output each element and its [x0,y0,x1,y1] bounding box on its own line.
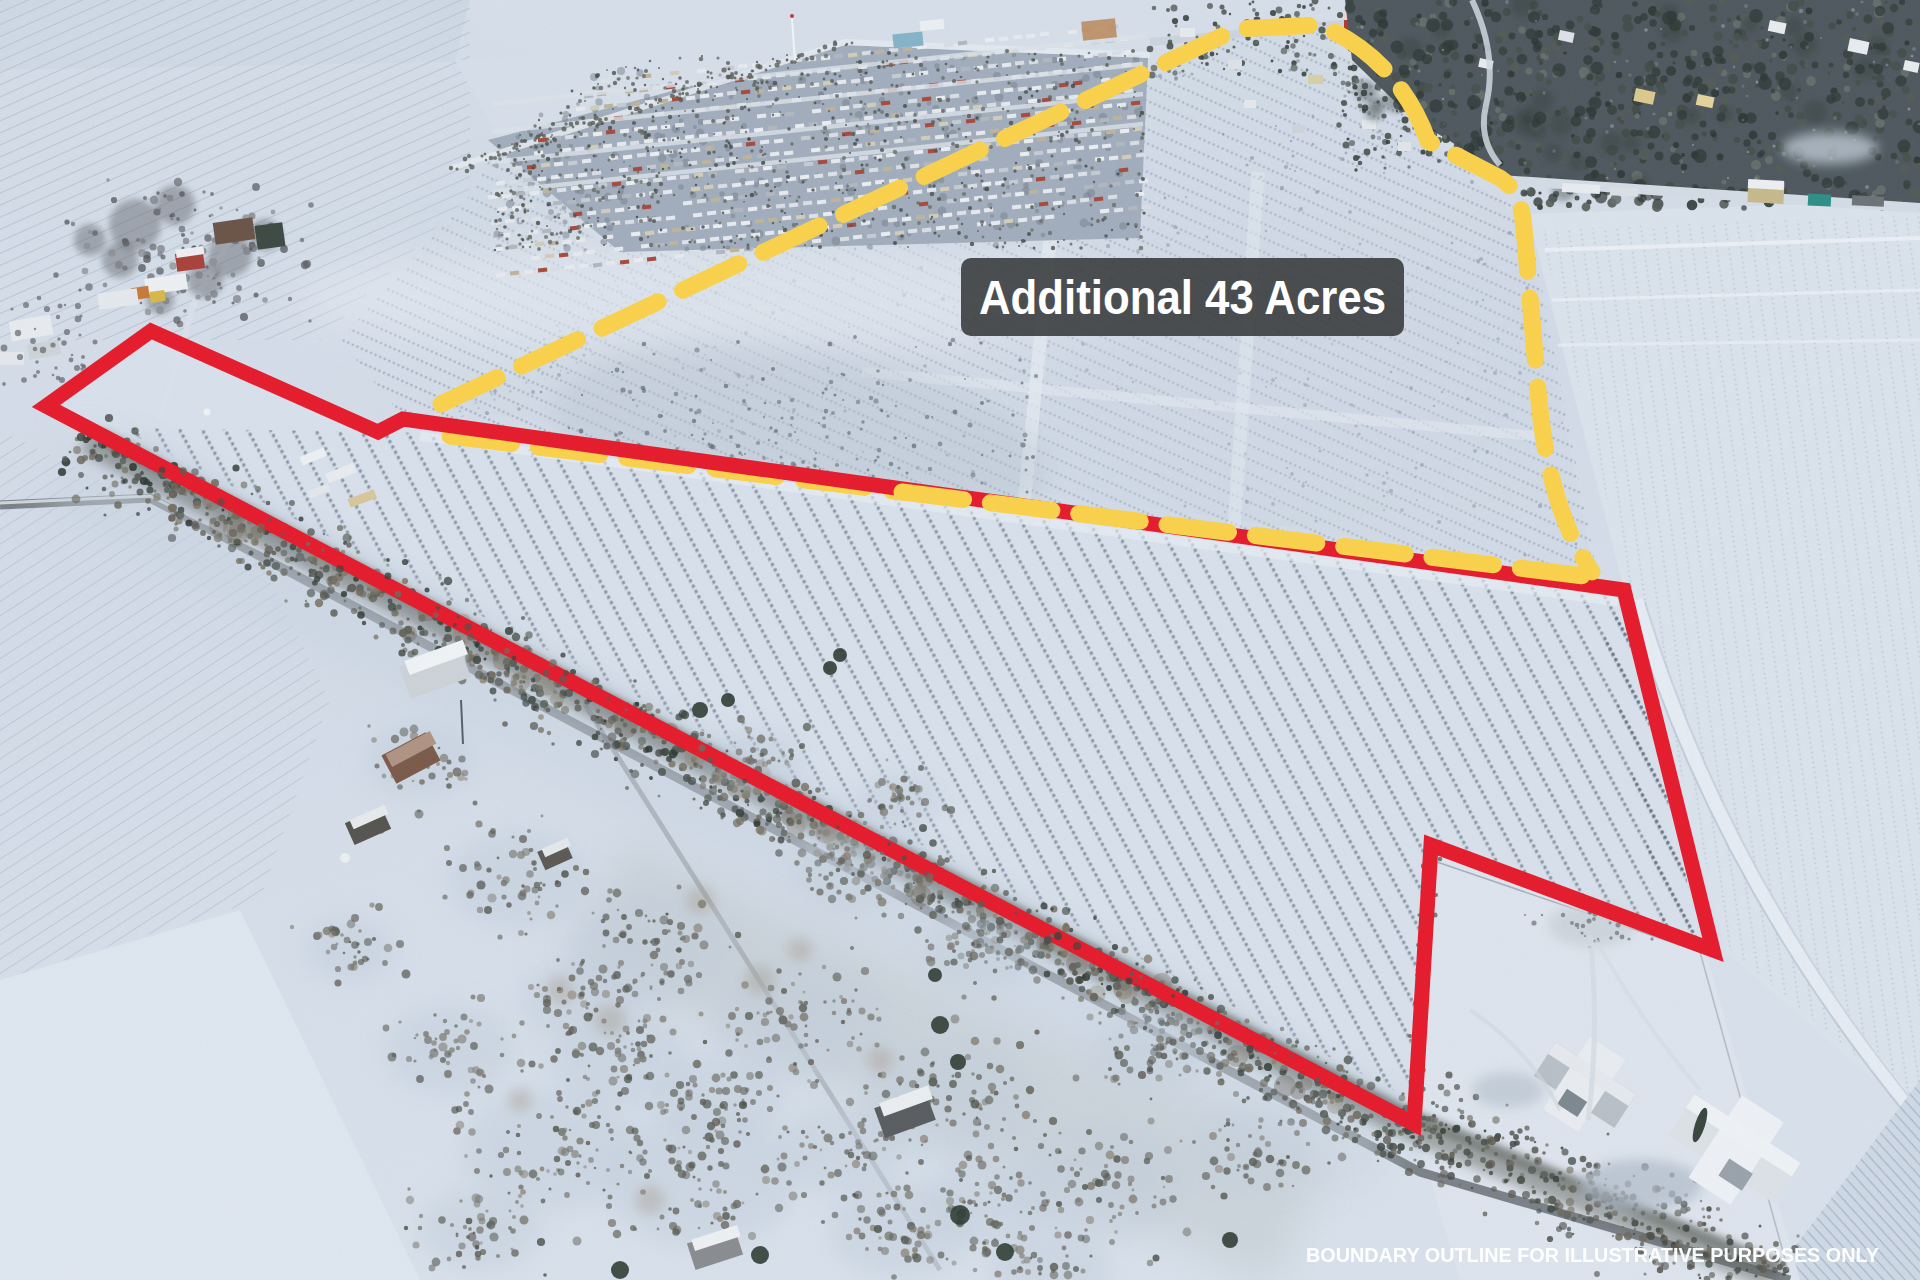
svg-text:Additional 43 Acres: Additional 43 Acres [979,270,1386,324]
svg-text:BOUNDARY OUTLINE FOR ILLUSTRAT: BOUNDARY OUTLINE FOR ILLUSTRATIVE PURPOS… [1306,1243,1879,1266]
